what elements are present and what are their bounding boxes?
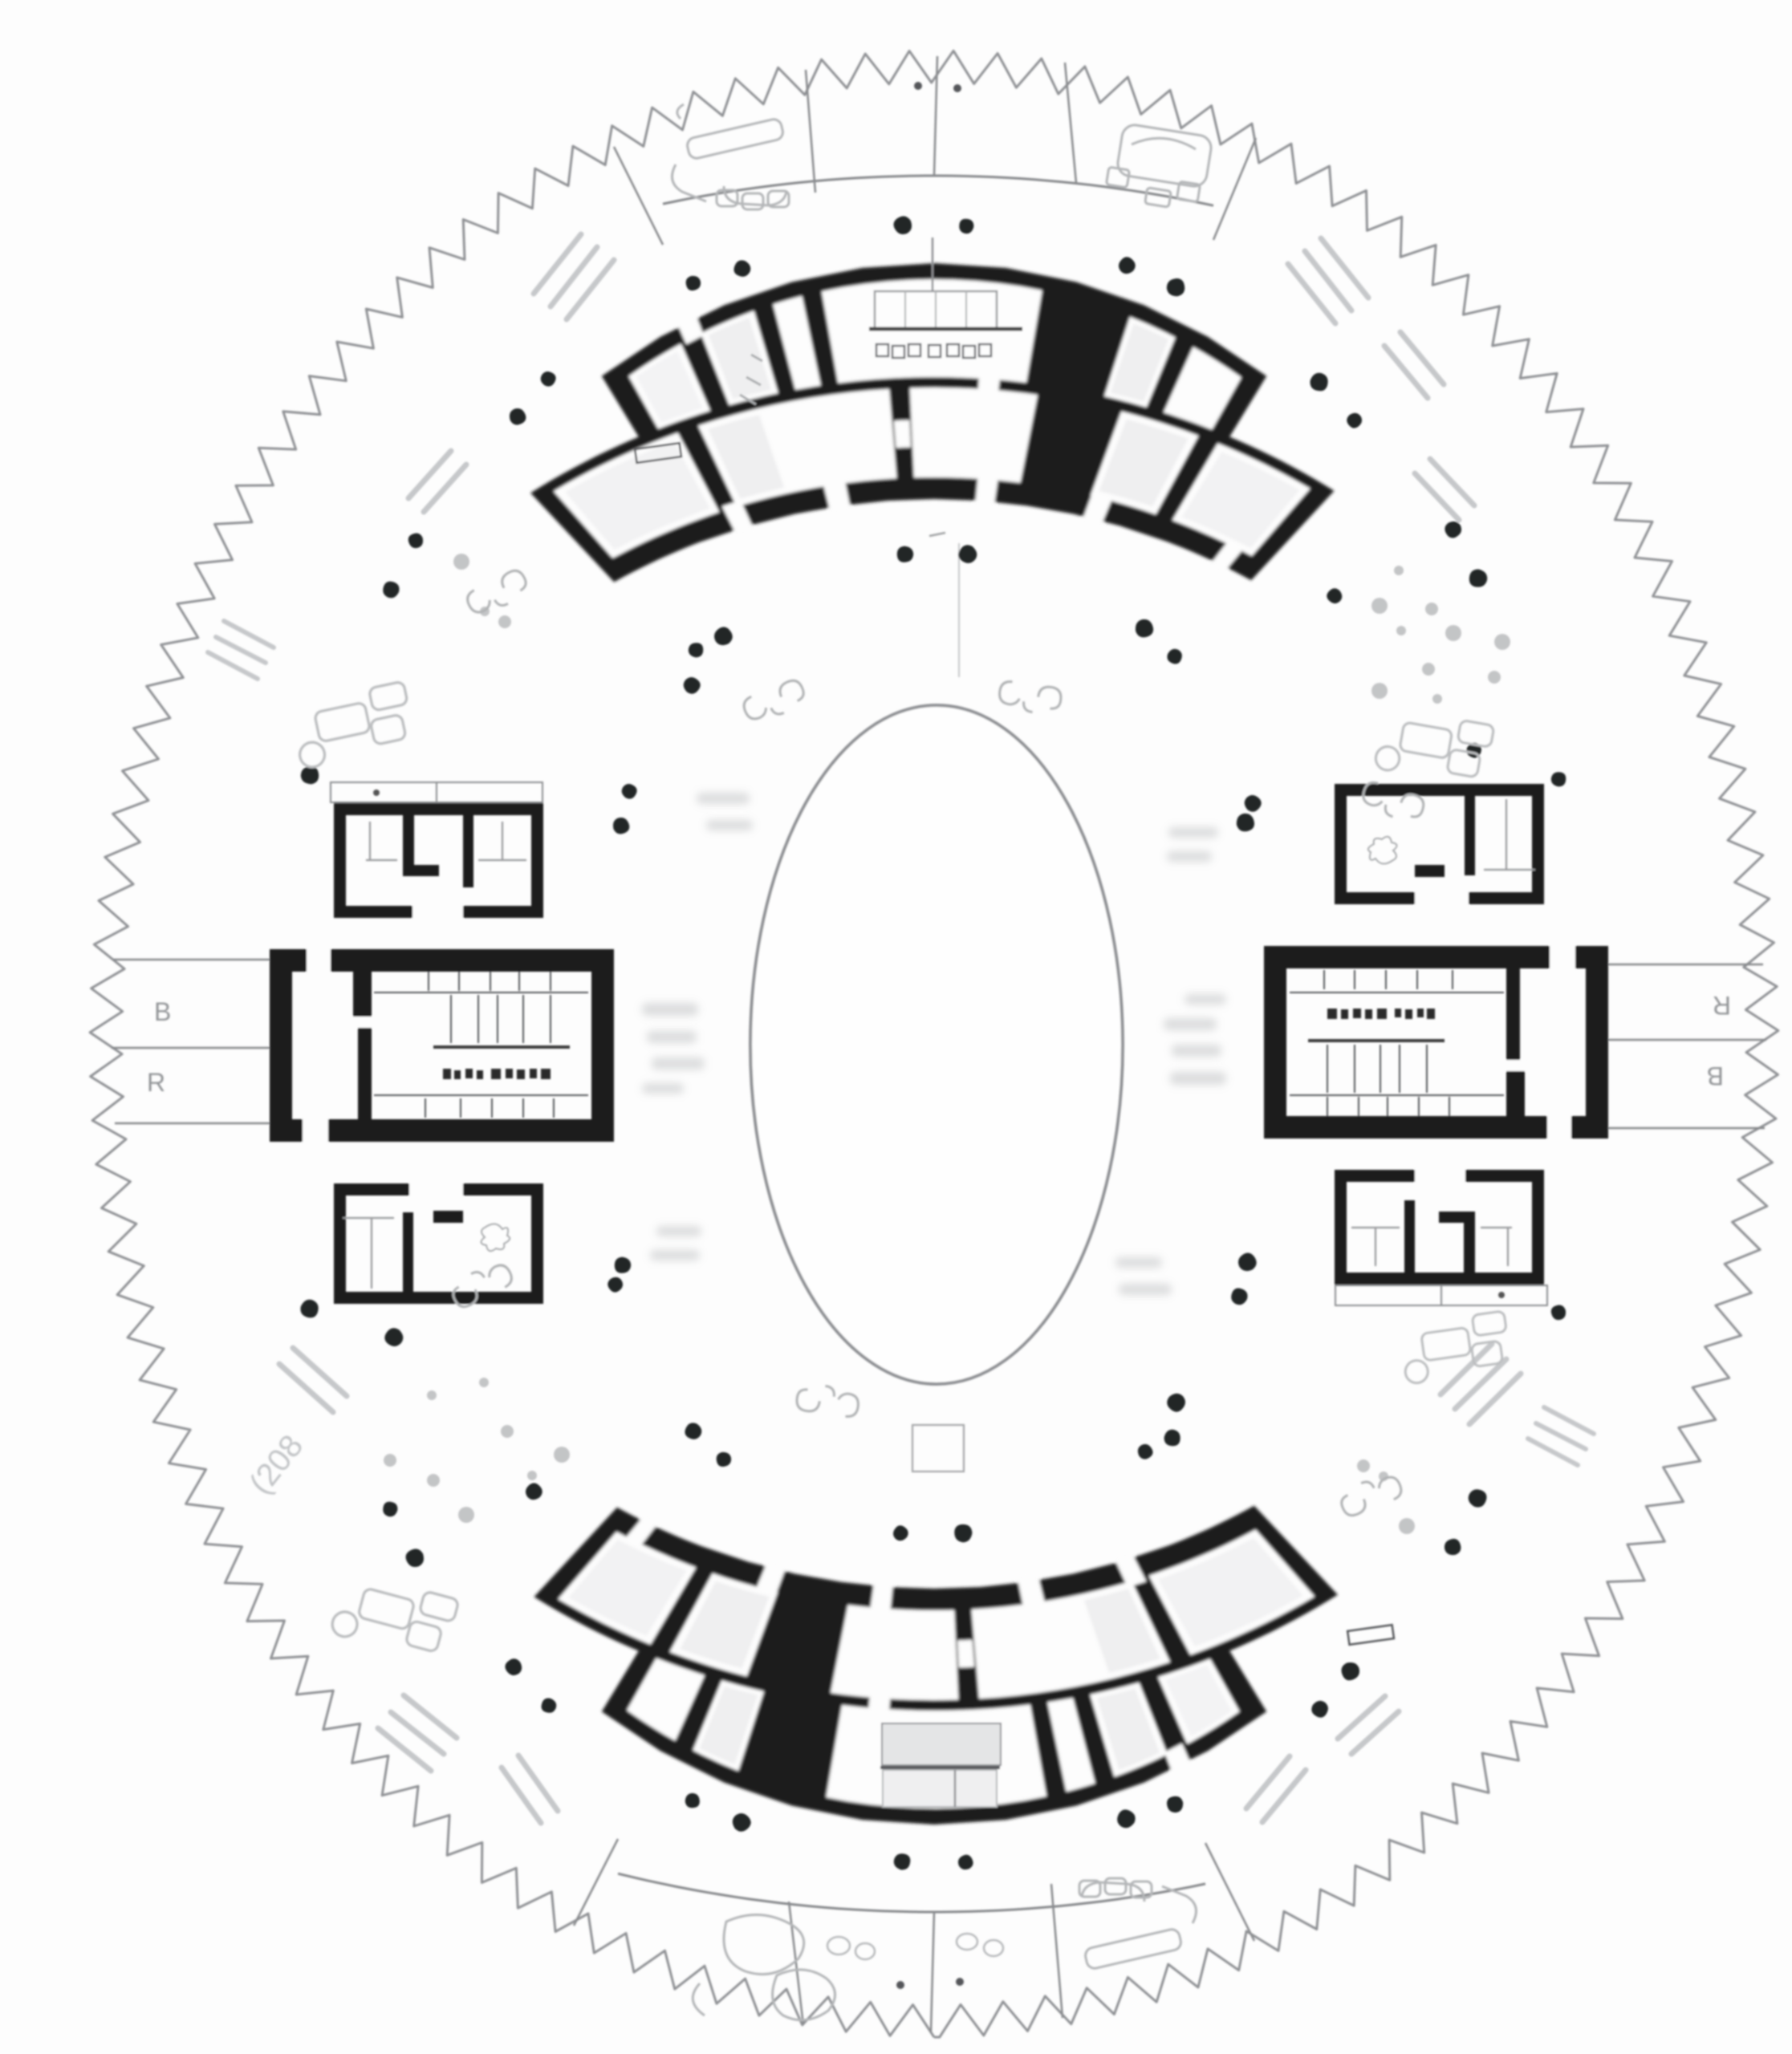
svg-text:B: B — [154, 997, 171, 1026]
svg-text:R: R — [1713, 991, 1731, 1020]
svg-text:R: R — [147, 1068, 165, 1097]
svg-text:B: B — [1707, 1062, 1724, 1090]
